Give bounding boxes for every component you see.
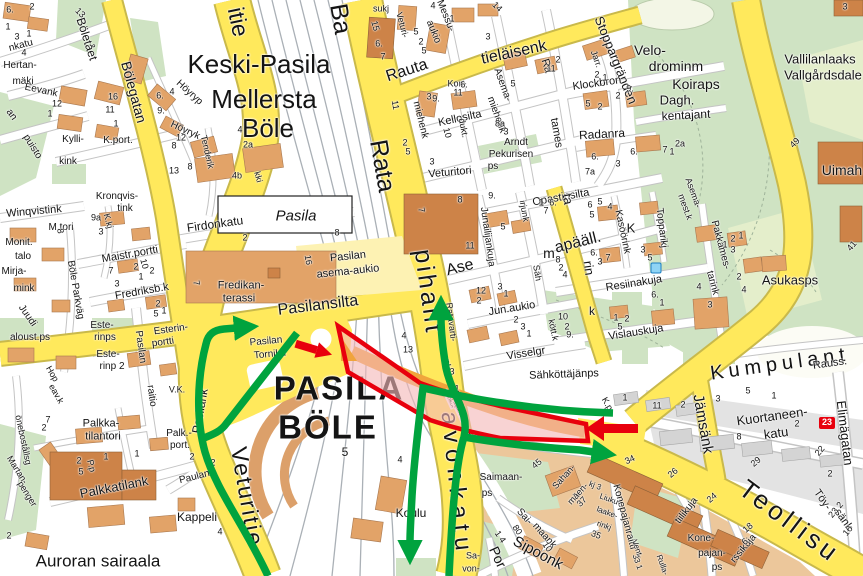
closure-arrow-east-icon [586, 416, 638, 441]
detour-routes-green [199, 318, 613, 576]
closure-arrow-west-icon [293, 336, 334, 362]
route-overlay [0, 0, 863, 576]
map-canvas: Keski-PasilaMellerstaBölePASILABÖLEAuror… [0, 0, 863, 576]
